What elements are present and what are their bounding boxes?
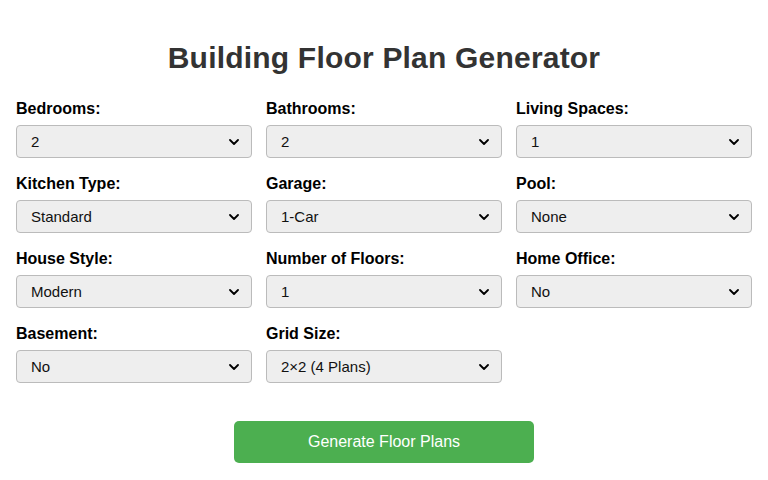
basement-label: Basement:: [16, 325, 252, 343]
basement-selected-value: No: [31, 358, 50, 375]
pool-label: Pool:: [516, 175, 752, 193]
chevron-down-icon: [479, 364, 489, 370]
generate-floor-plans-button[interactable]: Generate Floor Plans: [234, 421, 534, 463]
house-style-select[interactable]: Modern: [16, 275, 252, 308]
chevron-down-icon: [479, 139, 489, 145]
chevron-down-icon: [479, 289, 489, 295]
bedrooms-selected-value: 2: [31, 133, 39, 150]
chevron-down-icon: [729, 214, 739, 220]
chevron-down-icon: [729, 139, 739, 145]
living-spaces-select[interactable]: 1: [516, 125, 752, 158]
field-house-style: House Style: Modern: [16, 250, 252, 308]
kitchen-type-select[interactable]: Standard: [16, 200, 252, 233]
kitchen-type-selected-value: Standard: [31, 208, 92, 225]
home-office-select[interactable]: No: [516, 275, 752, 308]
house-style-label: House Style:: [16, 250, 252, 268]
chevron-down-icon: [229, 364, 239, 370]
field-garage: Garage: 1-Car: [266, 175, 502, 233]
house-style-selected-value: Modern: [31, 283, 82, 300]
garage-label: Garage:: [266, 175, 502, 193]
field-home-office: Home Office: No: [516, 250, 752, 308]
floor-plan-generator-page: Building Floor Plan Generator Bedrooms: …: [0, 0, 768, 480]
field-grid-size: Grid Size: 2×2 (4 Plans): [266, 325, 502, 383]
options-form: Bedrooms: 2 Bathrooms: 2 Living Spaces: …: [0, 100, 768, 400]
grid-size-label: Grid Size:: [266, 325, 502, 343]
chevron-down-icon: [229, 214, 239, 220]
home-office-label: Home Office:: [516, 250, 752, 268]
number-of-floors-selected-value: 1: [281, 283, 289, 300]
bedrooms-select[interactable]: 2: [16, 125, 252, 158]
field-pool: Pool: None: [516, 175, 752, 233]
chevron-down-icon: [729, 289, 739, 295]
chevron-down-icon: [229, 289, 239, 295]
basement-select[interactable]: No: [16, 350, 252, 383]
grid-size-select[interactable]: 2×2 (4 Plans): [266, 350, 502, 383]
bathrooms-selected-value: 2: [281, 133, 289, 150]
chevron-down-icon: [479, 214, 489, 220]
pool-select[interactable]: None: [516, 200, 752, 233]
living-spaces-selected-value: 1: [531, 133, 539, 150]
chevron-down-icon: [229, 139, 239, 145]
field-bedrooms: Bedrooms: 2: [16, 100, 252, 158]
field-bathrooms: Bathrooms: 2: [266, 100, 502, 158]
living-spaces-label: Living Spaces:: [516, 100, 752, 118]
pool-selected-value: None: [531, 208, 567, 225]
field-basement: Basement: No: [16, 325, 252, 383]
garage-selected-value: 1-Car: [281, 208, 319, 225]
home-office-selected-value: No: [531, 283, 550, 300]
number-of-floors-label: Number of Floors:: [266, 250, 502, 268]
kitchen-type-label: Kitchen Type:: [16, 175, 252, 193]
button-row: Generate Floor Plans: [0, 421, 768, 463]
bathrooms-select[interactable]: 2: [266, 125, 502, 158]
field-number-of-floors: Number of Floors: 1: [266, 250, 502, 308]
field-living-spaces: Living Spaces: 1: [516, 100, 752, 158]
bathrooms-label: Bathrooms:: [266, 100, 502, 118]
bedrooms-label: Bedrooms:: [16, 100, 252, 118]
grid-size-selected-value: 2×2 (4 Plans): [281, 358, 371, 375]
number-of-floors-select[interactable]: 1: [266, 275, 502, 308]
garage-select[interactable]: 1-Car: [266, 200, 502, 233]
page-title: Building Floor Plan Generator: [0, 40, 768, 76]
field-kitchen-type: Kitchen Type: Standard: [16, 175, 252, 233]
